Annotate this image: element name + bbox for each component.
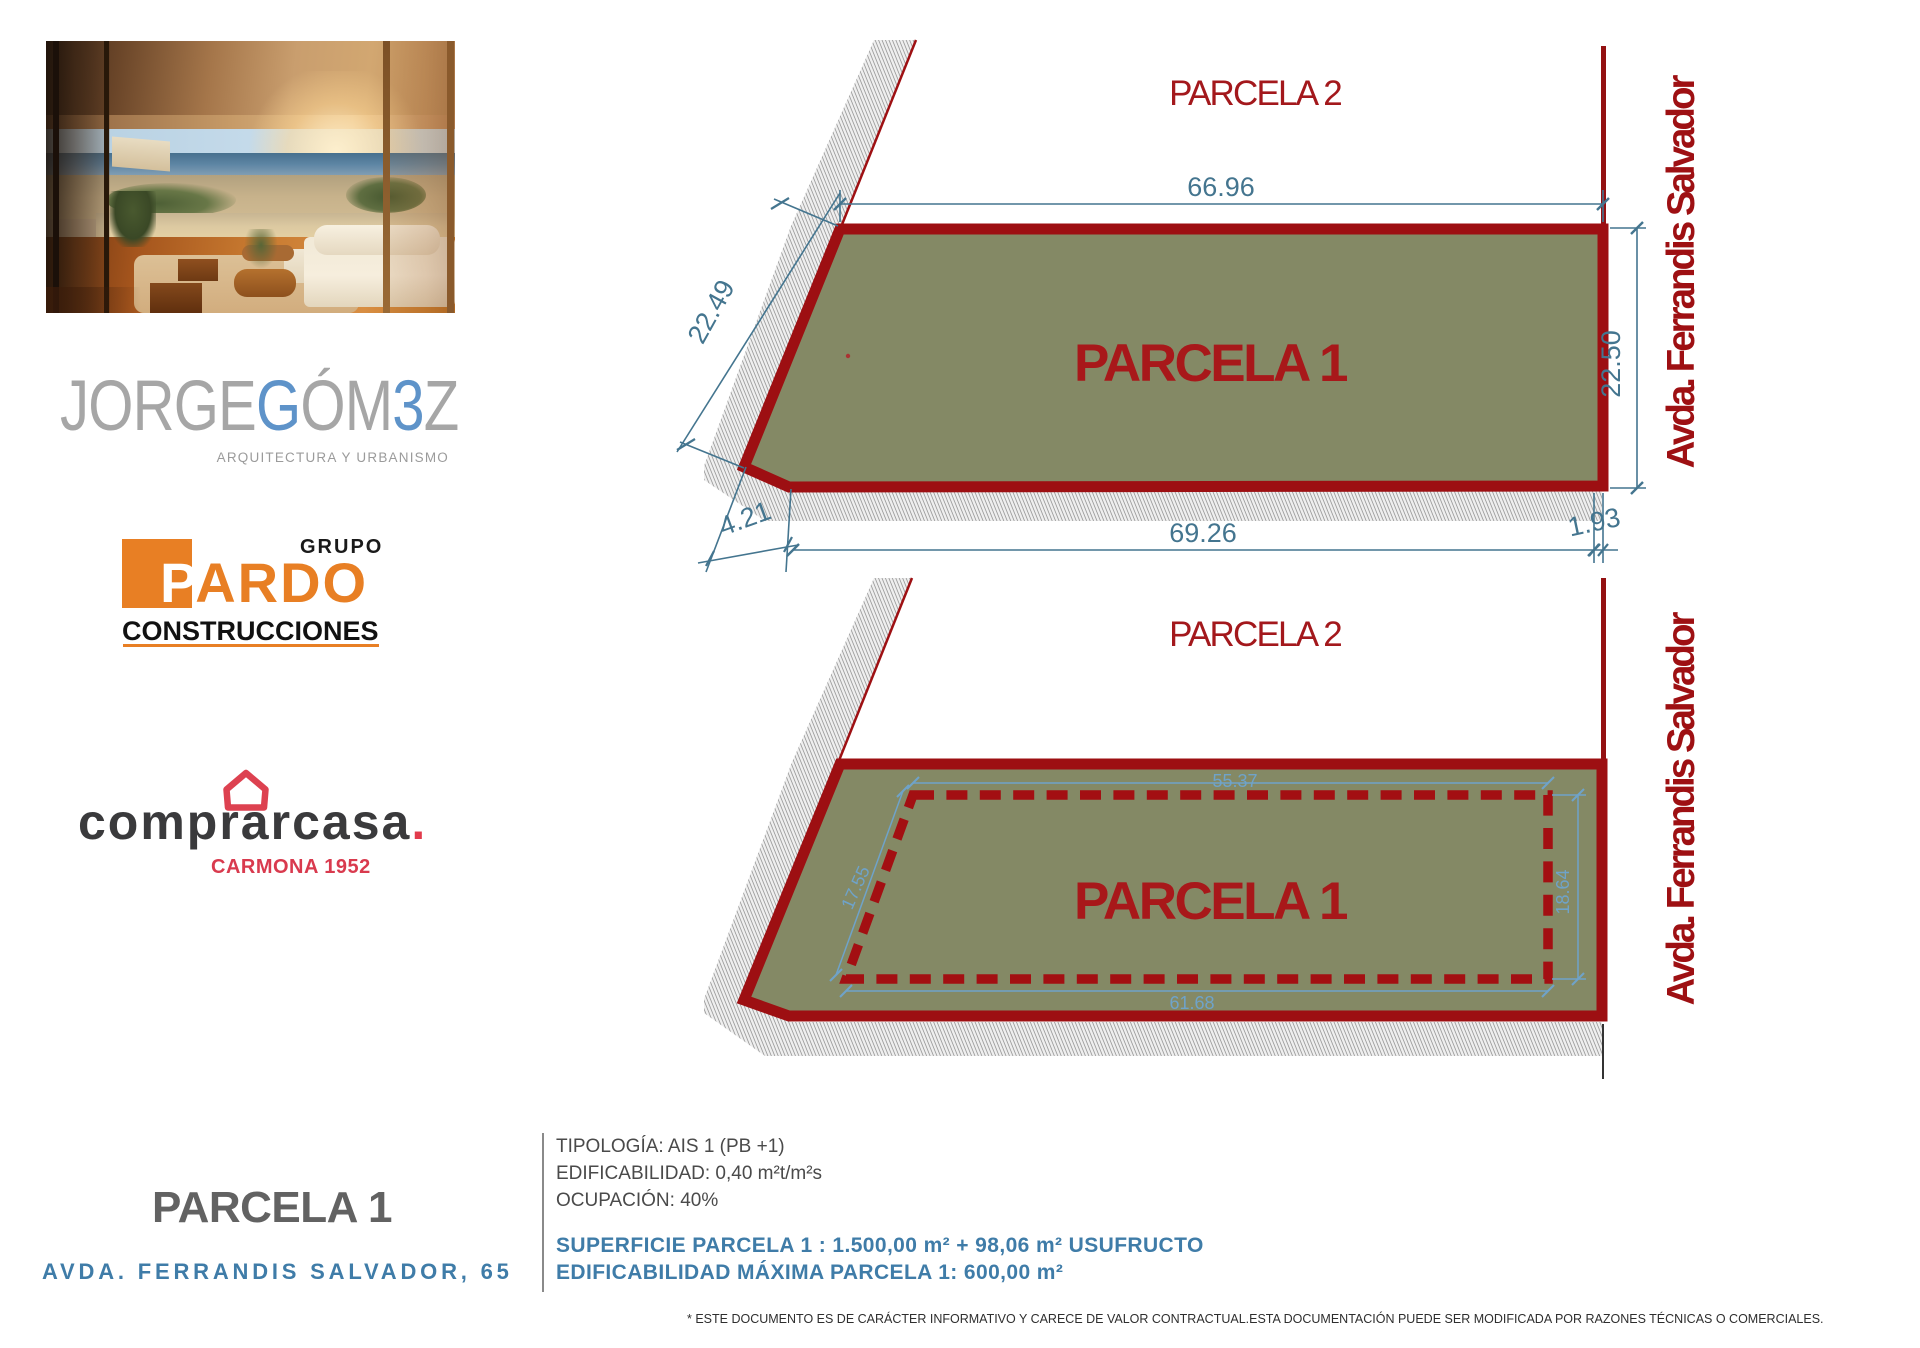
svg-text:69.26: 69.26 [1169,518,1237,548]
svg-text:Avda. Ferrandis Salvador: Avda. Ferrandis Salvador [1660,612,1703,1006]
svg-text:22.49: 22.49 [682,275,741,349]
svg-text:61.68: 61.68 [1169,993,1214,1013]
svg-text:55.37: 55.37 [1212,771,1257,791]
svg-text:PARCELA 2: PARCELA 2 [1169,615,1341,654]
svg-text:4.21: 4.21 [715,495,775,541]
svg-text:22.50: 22.50 [1596,330,1626,398]
svg-text:66.96: 66.96 [1187,172,1255,202]
svg-text:PARCELA 1: PARCELA 1 [1074,872,1347,931]
svg-text:18.64: 18.64 [1553,869,1573,914]
svg-text:PARCELA 2: PARCELA 2 [1169,74,1341,113]
svg-text:PARCELA 1: PARCELA 1 [1074,334,1347,393]
svg-text:Avda. Ferrandis Salvador: Avda. Ferrandis Salvador [1660,75,1703,469]
